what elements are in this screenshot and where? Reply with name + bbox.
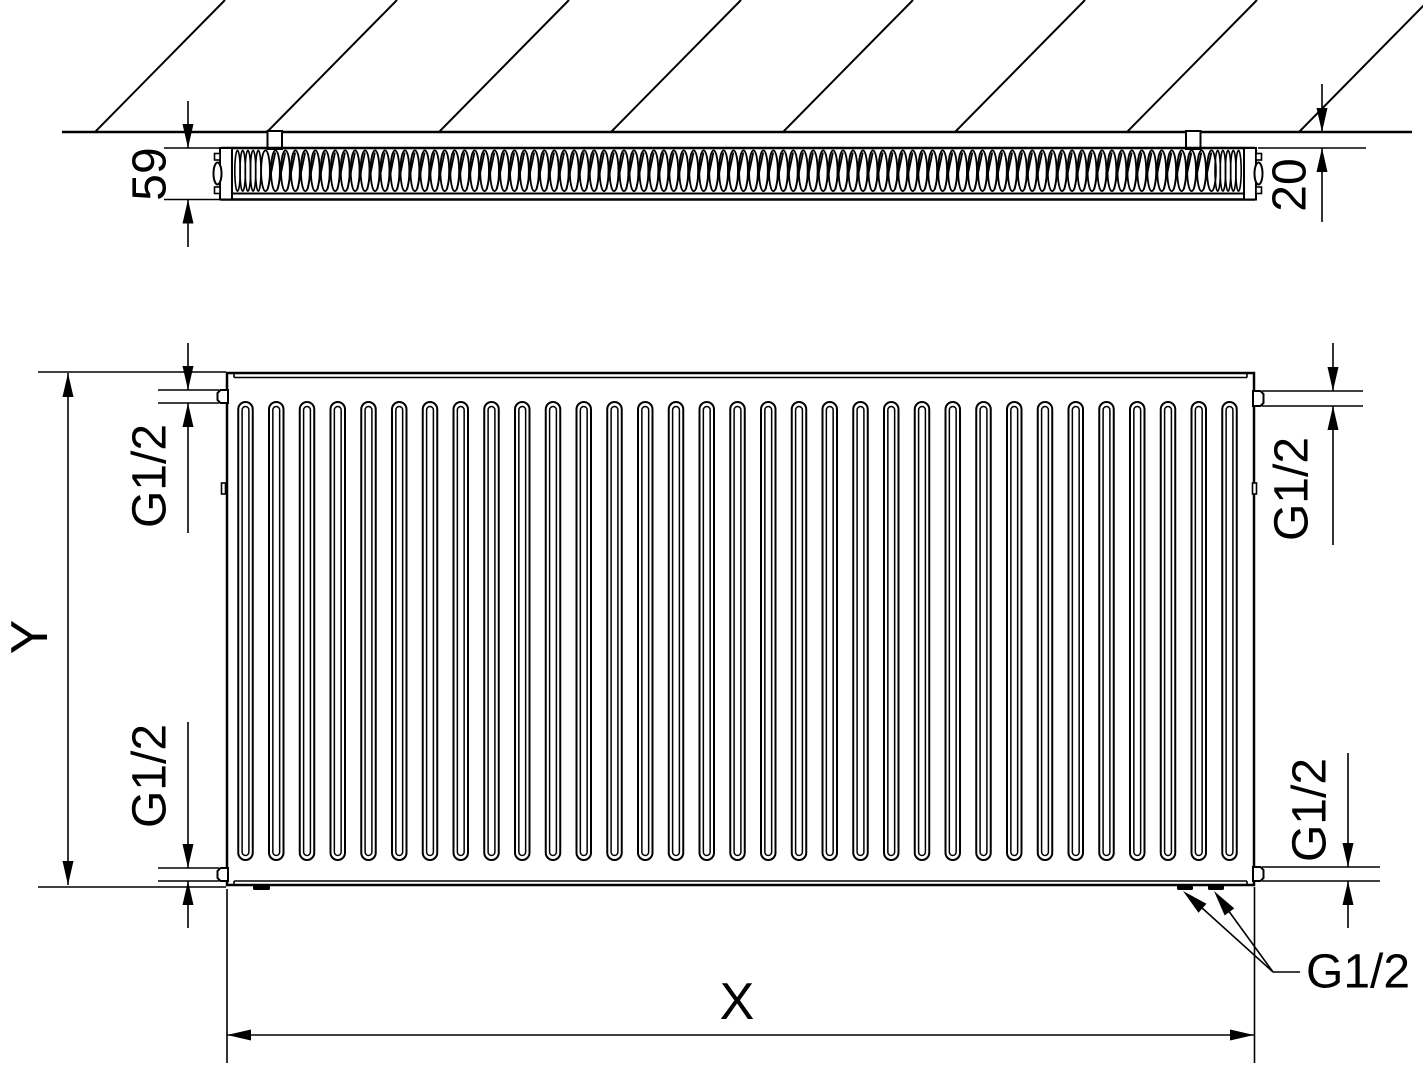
side-seam-mark-right (1253, 483, 1257, 494)
hatch-line (955, 0, 1085, 132)
wall-bracket-right (1186, 131, 1201, 149)
arrowhead-up (1317, 148, 1328, 172)
arrowhead-left (227, 1030, 251, 1041)
radiator-technical-drawing: 59 20 (0, 0, 1423, 1069)
width-label: X (720, 973, 755, 1031)
hatch-line (783, 0, 913, 132)
depth-label: 59 (124, 147, 177, 200)
arrowhead-right (1230, 1030, 1254, 1041)
top-view-radiator-body (214, 148, 1263, 200)
hatch-line (611, 0, 741, 132)
end-cap-right-lug-bottom (1256, 187, 1262, 194)
arrowhead-up (1343, 881, 1354, 905)
dimension-g12-top-right: G1/2 (1262, 343, 1363, 545)
dimension-g12-bottom-left: G1/2 (124, 722, 220, 928)
side-seam-mark-left (222, 483, 226, 494)
arrowhead-up (183, 881, 194, 905)
wall-gap-label: 20 (1264, 158, 1317, 211)
arrowhead-down (183, 366, 194, 390)
thread-label-bottom-pair: G1/2 (1306, 946, 1410, 999)
leader-arrowhead (1209, 887, 1234, 915)
dimension-y: Y (1, 372, 226, 887)
thread-label-bottom-right: G1/2 (1284, 758, 1337, 862)
arrowhead-down (1317, 108, 1328, 132)
hatch-line (267, 0, 397, 132)
front-view (218, 373, 1264, 890)
arrowhead-up (183, 403, 194, 427)
bottom-plug-mark-left (253, 886, 270, 891)
dimension-59: 59 (124, 101, 221, 247)
connection-stub-top-left (218, 390, 229, 403)
end-cap-left-lug-top (215, 154, 221, 161)
arrowhead-up (63, 373, 74, 397)
connection-stub-bottom-left (218, 868, 229, 881)
end-cap-right-stub (1255, 163, 1263, 185)
connection-stub-bottom-right (1253, 867, 1264, 881)
arrowhead-down (1328, 367, 1339, 391)
thread-label-top-left: G1/2 (124, 424, 177, 528)
convector-fins (235, 150, 1241, 191)
end-cap-left-lug-bottom (215, 187, 221, 194)
arrowhead-down (183, 124, 194, 148)
height-label: Y (1, 620, 59, 655)
end-cap-left-stub (214, 163, 222, 185)
thread-label-top-right: G1/2 (1266, 437, 1319, 541)
dimension-g12-bottom-right: G1/2 (1262, 753, 1380, 928)
thread-label-bottom-left: G1/2 (124, 724, 177, 828)
connection-stub-top-right (1253, 391, 1264, 406)
bottom-connection-mark-2 (1208, 886, 1224, 891)
arrowhead-down (183, 844, 194, 868)
wall-bracket-left (268, 131, 283, 149)
dimension-20: 20 (1258, 84, 1366, 222)
arrowhead-up (183, 200, 194, 224)
radiator-technical-drawing-page: 59 20 (0, 0, 1423, 1069)
dimension-x: X (227, 887, 1255, 1063)
hatch-line (1127, 0, 1257, 132)
arrowhead-down (1343, 843, 1354, 867)
hatch-line (439, 0, 569, 132)
arrowhead-down (63, 861, 74, 885)
arrowhead-up (1328, 406, 1339, 430)
bottom-connection-mark-1 (1177, 886, 1193, 891)
top-view: 59 20 (62, 0, 1423, 247)
end-cap-right-lug-top (1256, 154, 1262, 161)
wall-hatching (95, 0, 1423, 132)
hatch-line (95, 0, 225, 132)
leader-g12-bottom-connections: G1/2 (1179, 887, 1410, 999)
